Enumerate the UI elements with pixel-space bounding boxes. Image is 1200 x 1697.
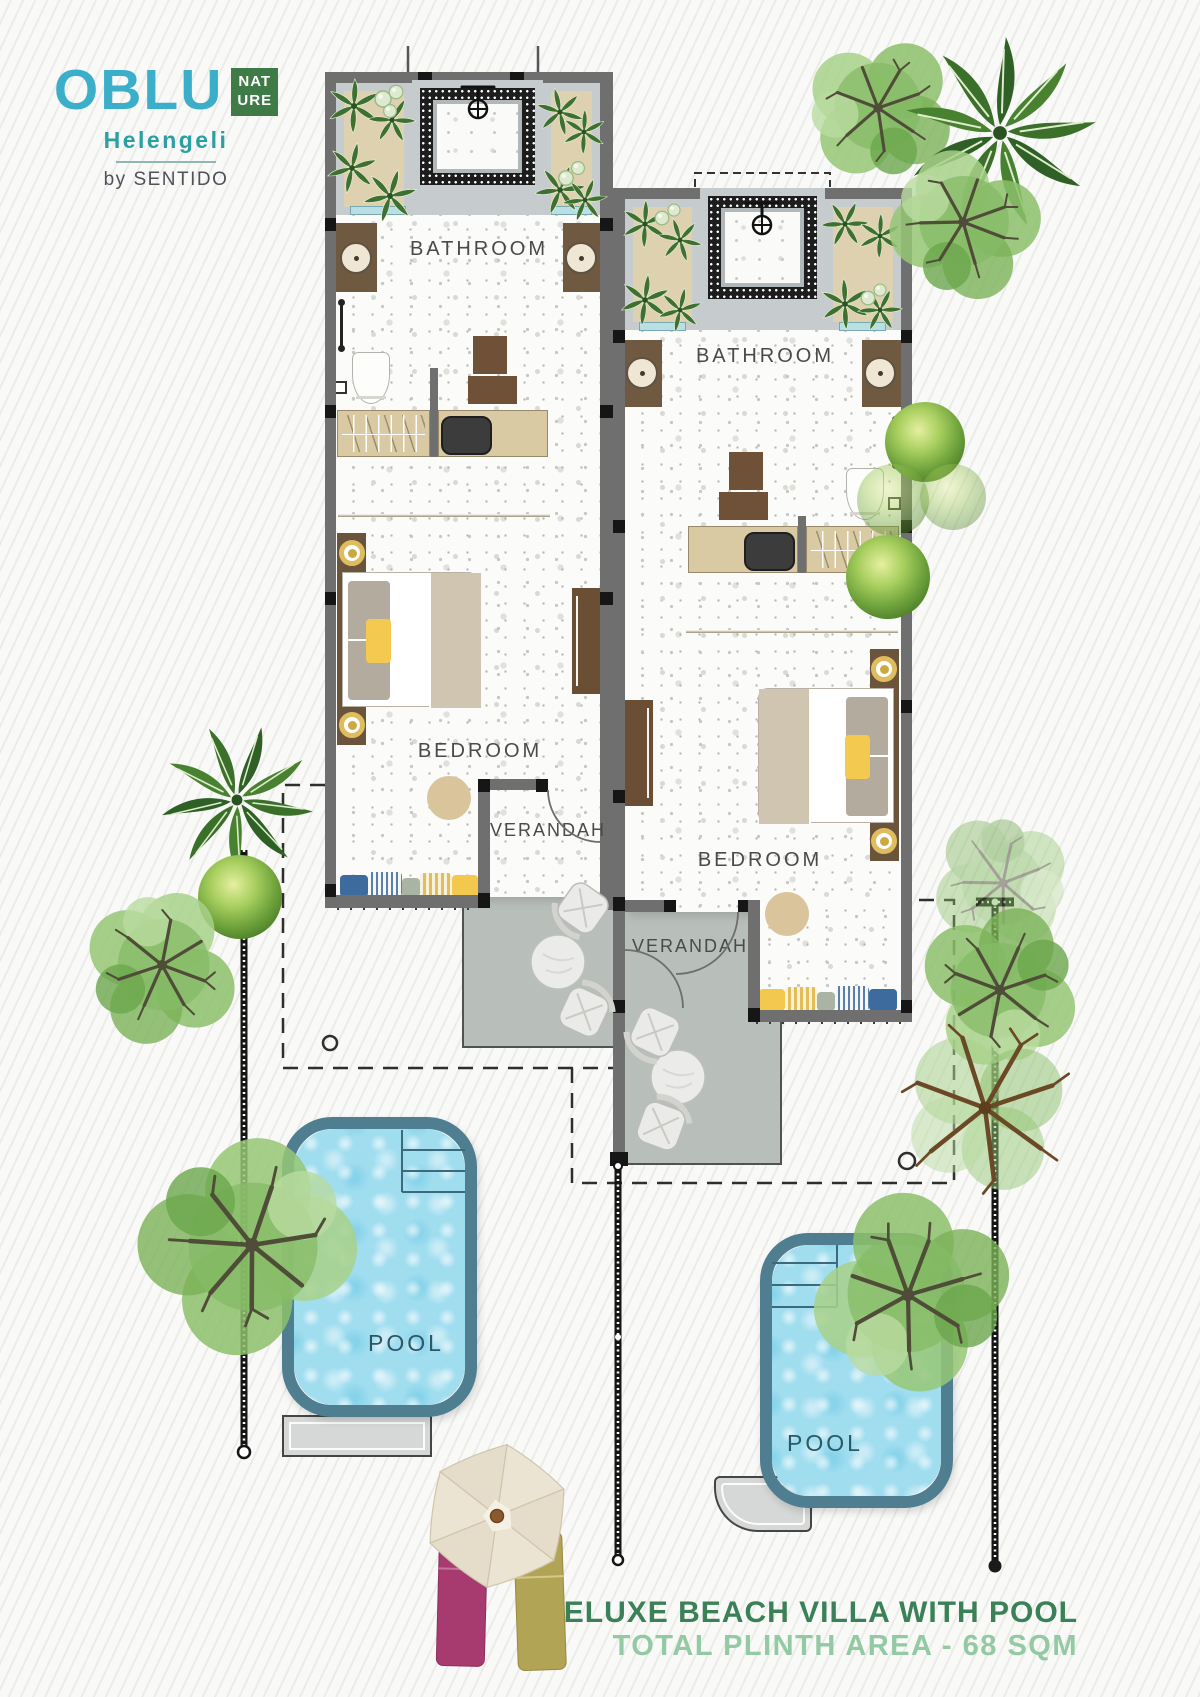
right-villa-ledge [686, 630, 898, 633]
palm-tree-icon [905, 37, 1097, 228]
left-villa-shower-floor [433, 100, 522, 173]
right-villa-towel-rail [894, 420, 897, 465]
right-villa-toilet [846, 468, 884, 520]
left-villa-wardrobe [337, 410, 430, 457]
right-villa-sink-left [626, 357, 658, 389]
left-villa-window-right [551, 206, 592, 215]
logo-divider [116, 161, 216, 163]
right-villa-nightstand-top [871, 656, 897, 682]
left-villa-planter-left [344, 91, 404, 207]
pool-water-right [772, 1245, 941, 1496]
badge-line2: URE [237, 92, 272, 111]
right-villa-nightstand-bottom [871, 828, 897, 854]
right-villa-wardrobe [806, 526, 899, 573]
bed-blanket [429, 573, 481, 708]
boundary-marker-circle [323, 1036, 337, 1050]
right-villa-verandah-label: VERANDAH [610, 936, 770, 957]
palm-tree-icon [144, 707, 331, 894]
plan-subtitle: TOTAL PLINTH AREA - 68 SQM [613, 1630, 1078, 1663]
left-villa-ledge [338, 514, 550, 517]
left-villa-entry-lines [408, 46, 538, 72]
verandah-deck-right-lower [625, 1022, 782, 1165]
right-villa-sink-right [864, 357, 896, 389]
boundary-marker-circle [899, 1153, 915, 1169]
tree-icon [81, 885, 242, 1052]
tree-icon [917, 900, 1084, 1073]
right-villa-planter-right [833, 207, 893, 322]
boardwalk-left [238, 850, 250, 1458]
pool-left [282, 1117, 477, 1417]
right-villa-bedroom-label: BEDROOM [680, 849, 840, 872]
left-villa-towel-rail [340, 303, 343, 348]
wall [325, 72, 336, 908]
wall [600, 72, 613, 910]
left-villa-verandah-label: VERANDAH [468, 820, 628, 841]
left-villa-nightstand-bottom [339, 712, 365, 738]
left-villa-tv-console [572, 588, 600, 694]
pool-deck-left [282, 1415, 432, 1457]
plan-title: DELUXE BEACH VILLA WITH POOL [541, 1596, 1078, 1630]
left-villa-nightstand-top [339, 540, 365, 566]
right-villa-window-seat [759, 986, 897, 1011]
right-pool-label: POOL [785, 1430, 865, 1457]
right-villa-window-left [639, 322, 686, 331]
bed-accent-cushion [845, 735, 870, 779]
wall [478, 790, 490, 908]
left-villa-bed [342, 572, 478, 707]
right-villa-bathroom-label: BATHROOM [685, 345, 845, 368]
left-villa-sink-left [340, 242, 372, 274]
bed-blanket [759, 689, 811, 824]
brand-wordmark: OBLU [54, 62, 223, 119]
right-villa-shower-floor [721, 208, 804, 287]
right-villa-desk-chair [744, 532, 795, 571]
left-villa-window-seat [340, 872, 478, 897]
boardwalk-center [613, 1162, 623, 1565]
bush-icon [920, 464, 986, 530]
right-villa-wall-fixture [888, 497, 901, 510]
right-villa-rug [765, 892, 809, 936]
right-villa-tv-console [625, 700, 653, 806]
nature-badge: NAT URE [231, 68, 278, 116]
wall [325, 895, 490, 908]
wall [748, 900, 760, 1022]
left-villa-desk-chair [441, 416, 492, 455]
left-villa-stool [473, 336, 507, 374]
byline: by SENTIDO [30, 169, 302, 191]
sun-lounger-pink [436, 1527, 488, 1666]
bush-icon [198, 855, 282, 939]
beach-umbrella [423, 1436, 571, 1597]
wall [901, 188, 912, 1022]
pool-right [760, 1233, 953, 1508]
left-villa-sink-right [565, 242, 597, 274]
property-name: Helengeli [30, 127, 302, 154]
left-pool-label: POOL [366, 1330, 446, 1357]
badge-line1: NAT [237, 73, 272, 92]
left-villa-rug [427, 776, 471, 820]
tree-icon [812, 43, 950, 174]
right-villa-bed [758, 688, 894, 823]
right-villa-bench [719, 492, 768, 520]
wall [748, 1010, 912, 1022]
verandah-deck-left-lower [462, 897, 613, 1048]
tree-icon [920, 803, 1081, 960]
left-villa-bench [468, 376, 517, 404]
left-villa-bathroom-label: BATHROOM [399, 238, 559, 261]
left-villa-toilet [352, 352, 390, 404]
pool-water-left [294, 1129, 465, 1405]
logo: OBLU NAT URE Helengeli by SENTIDO [30, 62, 302, 191]
left-villa-window-left [350, 206, 406, 215]
right-villa-planter-left [633, 207, 692, 322]
right-villa-entry-dashed [695, 173, 830, 187]
roots-tree-icon [902, 1025, 1068, 1193]
verandah-deck-right [625, 912, 748, 1024]
boardwalk-right [976, 899, 1014, 1573]
left-villa-bedroom-label: BEDROOM [400, 740, 560, 763]
right-villa-divider-wall [798, 516, 806, 573]
left-villa-planter-right [551, 91, 592, 207]
left-villa-divider-wall [430, 368, 438, 457]
right-villa-window-right [839, 322, 886, 331]
right-villa-stool [729, 452, 763, 490]
bed-accent-cushion [366, 619, 391, 663]
floor-plan-canvas: OBLU NAT URE Helengeli by SENTIDO [0, 0, 1200, 1697]
